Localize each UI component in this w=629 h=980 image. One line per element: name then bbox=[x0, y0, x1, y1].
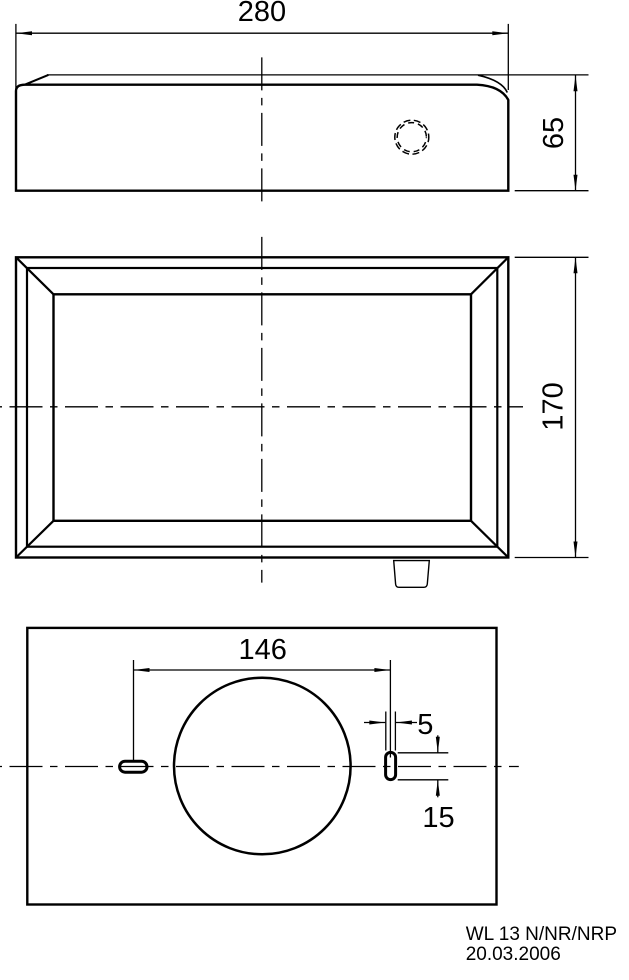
svg-text:20.03.2006: 20.03.2006 bbox=[466, 944, 561, 965]
svg-text:15: 15 bbox=[422, 802, 454, 834]
svg-text:5: 5 bbox=[417, 709, 433, 741]
svg-text:146: 146 bbox=[239, 634, 287, 666]
svg-text:170: 170 bbox=[538, 382, 570, 430]
svg-text:WL 13 N/NR/NRP: WL 13 N/NR/NRP bbox=[466, 924, 617, 945]
svg-text:65: 65 bbox=[538, 117, 570, 149]
svg-text:280: 280 bbox=[238, 0, 286, 28]
